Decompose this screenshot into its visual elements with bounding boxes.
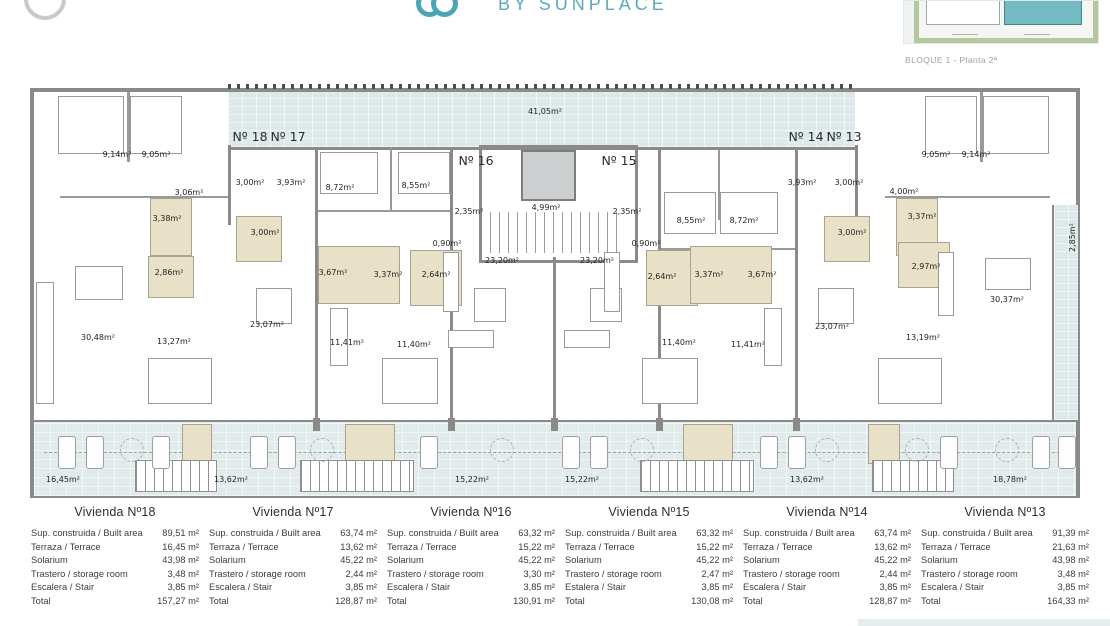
furniture — [925, 96, 977, 154]
terrace-stairs — [640, 460, 754, 492]
table-row: Terraza / Terrace16,45 m² — [31, 541, 199, 555]
room-area-label: 8,72m² — [326, 183, 355, 192]
row-value: 3,30 m² — [523, 568, 555, 582]
room-area-label: 15,22m² — [455, 475, 489, 484]
furniture — [330, 308, 348, 366]
table-row: Solarium43,98 m² — [921, 554, 1089, 568]
vivienda-table-title: Vivienda Nº18 — [31, 505, 199, 519]
vivienda-table: Vivienda Nº18Sup. construida / Built are… — [28, 503, 202, 609]
planter-circle — [995, 438, 1019, 462]
room-area-label: 3,93m² — [788, 178, 817, 187]
sun-lounger — [278, 436, 296, 469]
table-row: Solarium45,22 m² — [743, 554, 911, 568]
storage-box — [683, 424, 733, 464]
thumb-block-2 — [926, 0, 1000, 25]
table-row: Solarium45,22 m² — [209, 554, 377, 568]
row-label: Total — [31, 595, 51, 609]
room-area-label: 2,86m² — [155, 268, 184, 277]
room-area-label: 11,40m² — [397, 340, 431, 349]
room-area-label: 9,05m² — [142, 150, 171, 159]
elevator-shaft — [521, 150, 576, 201]
row-value: 2,44 m² — [879, 568, 911, 582]
wall — [656, 418, 663, 431]
top-terrace — [228, 92, 855, 150]
siteplan-thumbnail — [903, 0, 1099, 44]
room-area-label: 8,72m² — [730, 216, 759, 225]
table-row: Escalera / Stair3,85 m² — [743, 581, 911, 595]
room-area-label: 0,90m² — [632, 239, 661, 248]
row-value: 13,62 m² — [340, 541, 377, 555]
sun-lounger — [58, 436, 76, 469]
terrace-stairs — [135, 460, 217, 492]
row-value: 21,63 m² — [1052, 541, 1089, 555]
room-area-label: 3,37m² — [908, 212, 937, 221]
furniture — [564, 330, 610, 348]
furniture — [256, 288, 292, 324]
vivienda-table: Vivienda Nº17Sup. construida / Built are… — [206, 503, 380, 609]
storage-box — [868, 424, 900, 464]
row-label: Sup. construida / Built area — [31, 527, 143, 541]
row-label: Escalera / Stair — [31, 581, 94, 595]
row-value: 128,87 m² — [335, 595, 377, 609]
table-row: Sup. construida / Built area63,74 m² — [209, 527, 377, 541]
row-value: 2,47 m² — [701, 568, 733, 582]
row-value: 45,22 m² — [340, 554, 377, 568]
thumb-dimension — [1024, 34, 1050, 35]
table-row: Terraza / Terrace15,22 m² — [565, 541, 733, 555]
row-value: 3,85 m² — [1057, 581, 1089, 595]
room-area-label: 3,67m² — [748, 270, 777, 279]
bathroom-area — [824, 216, 870, 262]
furniture — [878, 358, 942, 404]
table-row: Sup. construida / Built area91,39 m² — [921, 527, 1089, 541]
footer-bar — [858, 619, 1110, 626]
wall — [228, 145, 231, 225]
row-value: 157,27 m² — [157, 595, 199, 609]
thumb-dimension — [952, 34, 978, 35]
row-label: Trastero / storage room — [921, 568, 1018, 582]
sun-lounger — [1058, 436, 1076, 469]
apartment-number-label: Nº 13 — [826, 129, 861, 144]
room-area-label: 15,22m² — [565, 475, 599, 484]
furniture — [148, 358, 212, 404]
apartment-number-label: Nº 16 — [458, 153, 493, 168]
row-label: Sup. construida / Built area — [743, 527, 855, 541]
furniture — [443, 252, 459, 312]
wall — [318, 210, 450, 212]
table-row: Terraza / Terrace13,62 m² — [743, 541, 911, 555]
furniture — [985, 258, 1031, 290]
storage-box — [182, 424, 212, 464]
table-row: Escalera / Stair3,85 m² — [387, 581, 555, 595]
brand-text: BY SUNPLACE — [498, 0, 668, 15]
row-label: Escalera / Stair — [387, 581, 450, 595]
row-label: Estalera / Stair — [565, 581, 626, 595]
room-area-label: 3,93m² — [277, 178, 306, 187]
planter-circle — [905, 438, 929, 462]
row-value: 3,85 m² — [167, 581, 199, 595]
bathroom-area — [236, 216, 282, 262]
apartment-number-label: Nº 17 — [270, 129, 305, 144]
row-label: Sup. construida / Built area — [387, 527, 499, 541]
vivienda-table: Vivienda Nº14Sup. construida / Built are… — [740, 503, 914, 609]
vivienda-table-title: Vivienda Nº17 — [209, 505, 377, 519]
room-area-label: 2,35m² — [455, 207, 484, 216]
room-area-label: 2,64m² — [648, 272, 677, 281]
wall — [448, 418, 455, 431]
storage-box — [345, 424, 395, 464]
table-row: Total128,87 m² — [743, 595, 911, 609]
row-value: 43,98 m² — [162, 554, 199, 568]
table-row: Solarium45,22 m² — [387, 554, 555, 568]
table-row: Trastero / storage room2,44 m² — [743, 568, 911, 582]
wall — [793, 418, 800, 431]
sun-lounger — [152, 436, 170, 469]
row-label: Terraza / Terrace — [31, 541, 101, 555]
table-row: Sup. construida / Built area63,74 m² — [743, 527, 911, 541]
row-value: 3,85 m² — [879, 581, 911, 595]
furniture — [642, 358, 698, 404]
furniture — [448, 330, 494, 348]
row-label: Escalera / Stair — [209, 581, 272, 595]
row-value: 89,51 m² — [162, 527, 199, 541]
room-area-label: 2,97m² — [912, 262, 941, 271]
table-row: Sup. construida / Built area63,32 m² — [387, 527, 555, 541]
thumb-block-1-highlighted — [1004, 0, 1082, 25]
bathroom-area — [150, 198, 192, 256]
room-area-label: 4,00m² — [890, 187, 919, 196]
row-label: Sup. construida / Built area — [209, 527, 321, 541]
furniture — [36, 282, 54, 404]
row-value: 91,39 m² — [1052, 527, 1089, 541]
room-area-label: 23,20m² — [580, 256, 614, 265]
table-row: Escalera / Stair3,85 m² — [31, 581, 199, 595]
planter-circle — [310, 438, 334, 462]
room-area-label: 13,62m² — [790, 475, 824, 484]
row-value: 15,22 m² — [696, 541, 733, 555]
furniture — [474, 288, 506, 322]
table-row: Solarium43,98 m² — [31, 554, 199, 568]
room-area-label: 3,00m² — [236, 178, 265, 187]
row-label: Trastero / storage room — [565, 568, 662, 582]
sun-lounger — [250, 436, 268, 469]
row-label: Sup. construida / Built area — [921, 527, 1033, 541]
dimension-ticks — [228, 84, 855, 89]
room-area-label-vertical: 2,85m² — [1068, 223, 1077, 252]
row-value: 3,48 m² — [167, 568, 199, 582]
sun-lounger — [420, 436, 438, 469]
planter-circle — [630, 438, 654, 462]
row-label: Escalera / Stair — [921, 581, 984, 595]
vivienda-table: Vivienda Nº16Sup. construida / Built are… — [384, 503, 558, 609]
row-value: 2,44 m² — [345, 568, 377, 582]
table-row: Escalera / Stair3,85 m² — [209, 581, 377, 595]
row-label: Trastero / storage room — [743, 568, 840, 582]
table-row: Trastero / storage room2,44 m² — [209, 568, 377, 582]
row-value: 63,74 m² — [874, 527, 911, 541]
thumbnail-caption: BLOQUE 1 - Planta 2ª — [905, 55, 997, 65]
room-area-label: 4,99m² — [532, 203, 561, 212]
room-area-label: 8,55m² — [677, 216, 706, 225]
row-value: 63,32 m² — [696, 527, 733, 541]
row-value: 15,22 m² — [518, 541, 555, 555]
furniture — [720, 192, 778, 234]
room-area-label: 3,67m² — [319, 268, 348, 277]
row-value: 16,45 m² — [162, 541, 199, 555]
room-area-label: 9,05m² — [922, 150, 951, 159]
row-value: 3,85 m² — [701, 581, 733, 595]
vivienda-table: Vivienda Nº15Sup. construida / Built are… — [562, 503, 736, 609]
room-area-label: 2,64m² — [422, 270, 451, 279]
room-area-label: 23,07m² — [815, 322, 849, 331]
sun-lounger — [590, 436, 608, 469]
room-area-label: 23,07m² — [250, 320, 284, 329]
row-value: 164,33 m² — [1047, 595, 1089, 609]
vivienda-table-title: Vivienda Nº16 — [387, 505, 555, 519]
row-value: 130,08 m² — [691, 595, 733, 609]
row-label: Escalera / Stair — [743, 581, 806, 595]
row-label: Solarium — [565, 554, 602, 568]
row-label: Total — [921, 595, 941, 609]
wall — [313, 418, 320, 431]
table-row: Terraza / Terrace21,63 m² — [921, 541, 1089, 555]
table-row: Total128,87 m² — [209, 595, 377, 609]
row-label: Solarium — [387, 554, 424, 568]
room-area-label: 30,48m² — [81, 333, 115, 342]
table-row: Sup. construida / Built area89,51 m² — [31, 527, 199, 541]
vivienda-table-title: Vivienda Nº13 — [921, 505, 1089, 519]
furniture — [75, 266, 123, 300]
table-row: Trastero / storage room3,48 m² — [31, 568, 199, 582]
row-value: 63,32 m² — [518, 527, 555, 541]
row-value: 45,22 m² — [874, 554, 911, 568]
table-row: Terraza / Terrace13,62 m² — [209, 541, 377, 555]
row-value: 128,87 m² — [869, 595, 911, 609]
room-area-label: 3,37m² — [374, 270, 403, 279]
room-area-label: 18,78m² — [993, 475, 1027, 484]
row-label: Total — [209, 595, 229, 609]
table-row: Terraza / Terrace15,22 m² — [387, 541, 555, 555]
sun-lounger — [760, 436, 778, 469]
row-value: 63,74 m² — [340, 527, 377, 541]
row-label: Terraza / Terrace — [743, 541, 813, 555]
room-area-label: 9,14m² — [962, 150, 991, 159]
row-value: 45,22 m² — [518, 554, 555, 568]
row-label: Total — [743, 595, 763, 609]
row-label: Terraza / Terrace — [921, 541, 991, 555]
room-area-label: 11,41m² — [330, 338, 364, 347]
furniture — [983, 96, 1049, 154]
room-area-label: 13,27m² — [157, 337, 191, 346]
room-area-label: 0,90m² — [433, 239, 462, 248]
furniture — [382, 358, 438, 404]
row-label: Trastero / storage room — [387, 568, 484, 582]
row-value: 13,62 m² — [874, 541, 911, 555]
row-label: Solarium — [209, 554, 246, 568]
table-row: Total130,08 m² — [565, 595, 733, 609]
room-area-label: 11,40m² — [662, 338, 696, 347]
wall — [390, 147, 392, 210]
row-label: Solarium — [743, 554, 780, 568]
planter-circle — [490, 438, 514, 462]
row-value: 45,22 m² — [696, 554, 733, 568]
room-area-label: 3,00m² — [835, 178, 864, 187]
room-area-label: 2,35m² — [613, 207, 642, 216]
table-row: Sup. construida / Built area63,32 m² — [565, 527, 733, 541]
room-area-label: 3,38m² — [153, 214, 182, 223]
company-logo-icon — [24, 0, 66, 20]
row-value: 3,48 m² — [1057, 568, 1089, 582]
furniture — [818, 288, 854, 324]
room-area-label: 8,55m² — [402, 181, 431, 190]
table-row: Trastero / storage room3,48 m² — [921, 568, 1089, 582]
apartment-number-label: Nº 15 — [601, 153, 636, 168]
furniture — [764, 308, 782, 366]
row-label: Trastero / storage room — [209, 568, 306, 582]
planter-circle — [120, 438, 144, 462]
row-value: 130,91 m² — [513, 595, 555, 609]
row-value: 43,98 m² — [1052, 554, 1089, 568]
row-label: Solarium — [31, 554, 68, 568]
wall — [551, 418, 558, 431]
sun-lounger — [788, 436, 806, 469]
room-area-label: 3,06m² — [175, 188, 204, 197]
table-row: Total130,91 m² — [387, 595, 555, 609]
table-row: Total164,33 m² — [921, 595, 1089, 609]
table-row: Escalera / Stair3,85 m² — [921, 581, 1089, 595]
room-area-label: 3,00m² — [251, 228, 280, 237]
vivienda-table: Vivienda Nº13Sup. construida / Built are… — [918, 503, 1092, 609]
vivienda-table-title: Vivienda Nº14 — [743, 505, 911, 519]
room-area-label: 16,45m² — [46, 475, 80, 484]
row-label: Terraza / Terrace — [209, 541, 279, 555]
area-tables: Vivienda Nº18Sup. construida / Built are… — [28, 503, 1080, 609]
wall — [795, 147, 798, 420]
row-label: Terraza / Terrace — [387, 541, 457, 555]
row-label: Solarium — [921, 554, 958, 568]
planter-circle — [815, 438, 839, 462]
thumb-dimension — [974, 39, 1029, 40]
row-label: Total — [565, 595, 585, 609]
sun-lounger — [940, 436, 958, 469]
row-value: 3,85 m² — [523, 581, 555, 595]
room-area-label: 3,00m² — [838, 228, 867, 237]
room-area-label: 9,14m² — [103, 150, 132, 159]
stair-treads — [490, 212, 621, 253]
sun-lounger — [86, 436, 104, 469]
wall — [553, 257, 556, 420]
room-area-label: 13,62m² — [214, 475, 248, 484]
room-area-label: 23,20m² — [485, 256, 519, 265]
row-label: Terraza / Terrace — [565, 541, 635, 555]
table-row: Solarium45,22 m² — [565, 554, 733, 568]
room-area-label: 3,37m² — [695, 270, 724, 279]
table-row: Trastero / storage room3,30 m² — [387, 568, 555, 582]
apartment-number-label: Nº 18 — [232, 129, 267, 144]
room-area-label: 41,05m² — [528, 107, 562, 116]
row-label: Total — [387, 595, 407, 609]
table-row: Trastero / storage room2,47 m² — [565, 568, 733, 582]
row-value: 3,85 m² — [345, 581, 377, 595]
furniture — [130, 96, 182, 154]
table-row: Total157,27 m² — [31, 595, 199, 609]
room-area-label: 30,37m² — [990, 295, 1024, 304]
terrace-stairs — [300, 460, 414, 492]
bathroom-area — [148, 256, 194, 298]
row-label: Trastero / storage room — [31, 568, 128, 582]
room-area-label: 11,41m² — [731, 340, 765, 349]
row-label: Sup. construida / Built area — [565, 527, 677, 541]
furniture — [58, 96, 124, 154]
room-area-label: 13,19m² — [906, 333, 940, 342]
table-row: Estalera / Stair3,85 m² — [565, 581, 733, 595]
vivienda-table-title: Vivienda Nº15 — [565, 505, 733, 519]
sun-lounger — [562, 436, 580, 469]
furniture — [664, 192, 716, 234]
sun-lounger — [1032, 436, 1050, 469]
apartment-number-label: Nº 14 — [788, 129, 823, 144]
floorplan-sheet: { "header": { "brand_text": "BY SUNPLACE… — [0, 0, 1110, 626]
